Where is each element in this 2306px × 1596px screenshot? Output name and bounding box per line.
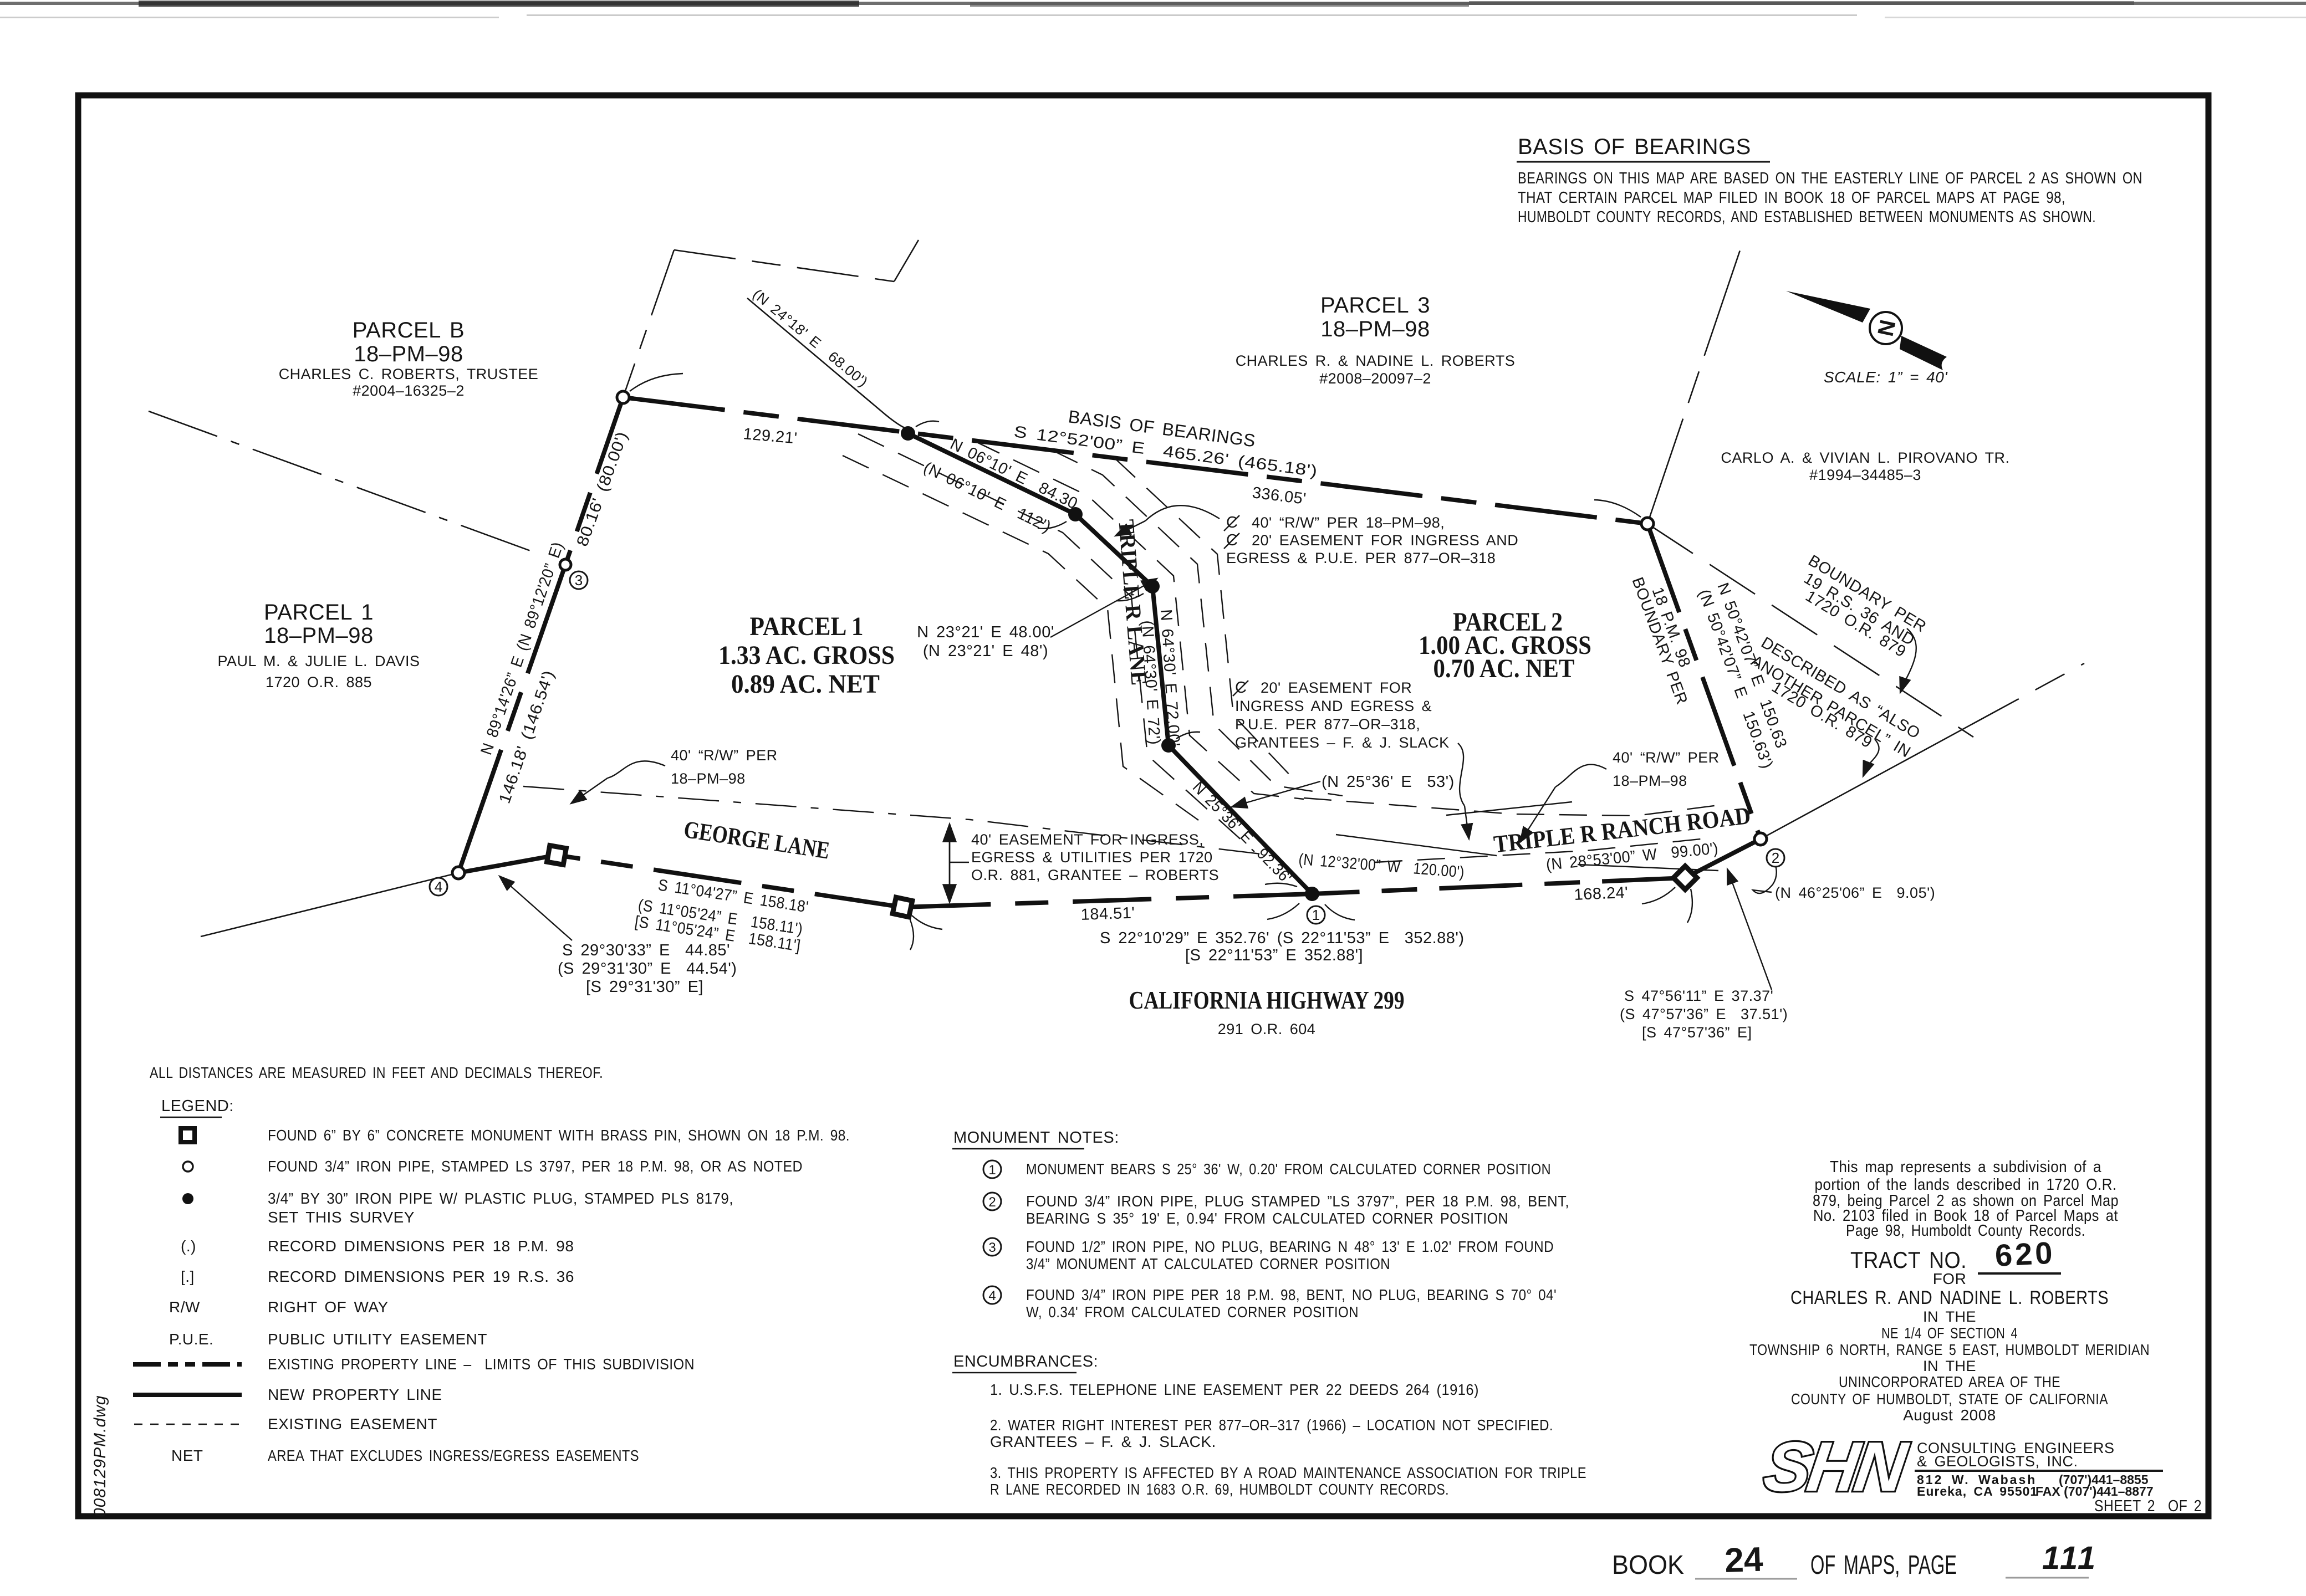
svg-text:Eureka, CA 95501: Eureka, CA 95501	[1917, 1484, 2038, 1498]
svg-text:(S 29°31'30” E 44.54'): (S 29°31'30” E 44.54')	[558, 960, 737, 978]
svg-text:& GEOLOGISTS, INC.: & GEOLOGISTS, INC.	[1917, 1453, 2078, 1470]
svg-text:S 29°30'33” E 44.85': S 29°30'33” E 44.85'	[562, 942, 730, 959]
svg-text:3/4” MONUMENT AT CALCULATED CO: 3/4” MONUMENT AT CALCULATED CORNER POSIT…	[1026, 1255, 1390, 1272]
svg-text:1720 O.R. 885: 1720 O.R. 885	[266, 674, 372, 690]
svg-text:(.): (.)	[181, 1237, 196, 1255]
svg-text:40' “R/W” PER 18–PM–98,: 40' “R/W” PER 18–PM–98,	[1252, 514, 1445, 531]
svg-text:NE 1/4 OF SECTION 4: NE 1/4 OF SECTION 4	[1881, 1324, 2018, 1342]
svg-text:18–PM–98: 18–PM–98	[671, 770, 746, 787]
svg-text:P.U.E.: P.U.E.	[169, 1331, 213, 1348]
svg-text:MONUMENT NOTES:: MONUMENT NOTES:	[953, 1129, 1119, 1147]
svg-text:1: 1	[1312, 907, 1320, 923]
svg-text:SCALE: 1” = 40': SCALE: 1” = 40'	[1824, 369, 1948, 386]
svg-text:BASIS OF BEARINGS: BASIS OF BEARINGS	[1518, 135, 1751, 159]
svg-text:0.89 AC. NET: 0.89 AC. NET	[731, 669, 880, 699]
svg-text:4: 4	[435, 878, 442, 895]
svg-text:portion of the lands described: portion of the lands described in 1720 O…	[1815, 1176, 2117, 1194]
svg-text:[S 47°57'36” E]: [S 47°57'36” E]	[1642, 1024, 1752, 1041]
svg-text:(N 23°21' E 48'): (N 23°21' E 48')	[923, 642, 1048, 660]
svg-text:291 O.R. 604: 291 O.R. 604	[1218, 1021, 1316, 1037]
svg-text:#2008–20097–2: #2008–20097–2	[1319, 370, 1431, 387]
svg-text:This map represents a subdivis: This map represents a subdivision of a	[1830, 1158, 2101, 1176]
svg-text:S 47°56'11” E 37.37': S 47°56'11” E 37.37'	[1624, 988, 1773, 1004]
svg-text:111: 111	[2042, 1540, 2098, 1576]
svg-text:PARCEL 1: PARCEL 1	[264, 600, 374, 625]
svg-text:R LANE RECORDED IN 1683 O.R. 6: R LANE RECORDED IN 1683 O.R. 69, HUMBOLD…	[990, 1481, 1449, 1498]
svg-text:0.70 AC. NET: 0.70 AC. NET	[1433, 654, 1575, 683]
svg-text:(N 46°25'06” E 9.05'): (N 46°25'06” E 9.05')	[1775, 884, 1935, 901]
svg-text:(N 25°36' E 53'): (N 25°36' E 53')	[1322, 773, 1455, 791]
svg-text:EXISTING EASEMENT: EXISTING EASEMENT	[268, 1415, 437, 1433]
svg-text:3: 3	[575, 572, 583, 589]
svg-text:INGRESS AND EGRESS &: INGRESS AND EGRESS &	[1235, 698, 1432, 714]
svg-text:ALL DISTANCES ARE MEASURED IN: ALL DISTANCES ARE MEASURED IN FEET AND D…	[150, 1064, 603, 1081]
svg-text:18–PM–98: 18–PM–98	[1320, 317, 1430, 341]
svg-text:NEW PROPERTY LINE: NEW PROPERTY LINE	[268, 1386, 442, 1403]
svg-text:[.]: [.]	[181, 1268, 195, 1285]
svg-text:SET THIS SURVEY: SET THIS SURVEY	[268, 1209, 415, 1226]
svg-text:24: 24	[1724, 1541, 1764, 1580]
svg-text:2. WATER RIGHT INTEREST PER 87: 2. WATER RIGHT INTEREST PER 877–OR–317 (…	[990, 1416, 1553, 1434]
svg-text:R/W: R/W	[169, 1298, 200, 1316]
svg-text:MONUMENT BEARS S 25° 36' W, 0.: MONUMENT BEARS S 25° 36' W, 0.20' FROM C…	[1026, 1160, 1551, 1178]
svg-text:COUNTY OF HUMBOLDT, STATE OF C: COUNTY OF HUMBOLDT, STATE OF CALIFORNIA	[1791, 1390, 2108, 1408]
svg-text:18–PM–98: 18–PM–98	[1613, 773, 1687, 789]
svg-text:BEARINGS ON THIS MAP ARE BASED: BEARINGS ON THIS MAP ARE BASED ON THE EA…	[1518, 170, 2142, 187]
svg-text:2: 2	[988, 1195, 996, 1210]
svg-text:FOUND 3/4” IRON PIPE PER 18 P.: FOUND 3/4” IRON PIPE PER 18 P.M. 98, BEN…	[1026, 1286, 1557, 1303]
svg-text:40' “R/W” PER: 40' “R/W” PER	[671, 747, 778, 764]
svg-text:[S 29°31'30” E]: [S 29°31'30” E]	[586, 978, 703, 996]
svg-text:2: 2	[1772, 850, 1779, 866]
svg-text:THAT CERTAIN PARCEL MAP FILED: THAT CERTAIN PARCEL MAP FILED IN BOOK 18…	[1518, 189, 2065, 207]
svg-text:PARCEL 3: PARCEL 3	[1320, 293, 1430, 318]
svg-text:PUBLIC UTILITY EASEMENT: PUBLIC UTILITY EASEMENT	[268, 1331, 487, 1348]
svg-text:CHARLES C. ROBERTS, TRUSTEE: CHARLES C. ROBERTS, TRUSTEE	[279, 366, 539, 382]
svg-text:AREA THAT EXCLUDES INGRESS/EGR: AREA THAT EXCLUDES INGRESS/EGRESS EASEME…	[268, 1447, 639, 1464]
svg-text:CHARLES R. & NADINE L. ROBERTS: CHARLES R. & NADINE L. ROBERTS	[1236, 352, 1516, 369]
svg-text:NET: NET	[171, 1447, 203, 1464]
svg-text:RECORD DIMENSIONS PER 19 R.S.: RECORD DIMENSIONS PER 19 R.S. 36	[268, 1268, 574, 1285]
svg-text:SHN: SHN	[1759, 1428, 1912, 1506]
svg-text:August 2008: August 2008	[1903, 1406, 1996, 1424]
svg-text:FOR: FOR	[1933, 1270, 1967, 1287]
svg-text:P.U.E. PER 877–OR–318,: P.U.E. PER 877–OR–318,	[1235, 716, 1420, 733]
svg-text:OF MAPS, PAGE: OF MAPS, PAGE	[1810, 1551, 1957, 1580]
svg-text:LEGEND:: LEGEND:	[161, 1097, 234, 1115]
svg-text:20' EASEMENT FOR: 20' EASEMENT FOR	[1261, 679, 1412, 696]
svg-text:CALIFORNIA HIGHWAY 299: CALIFORNIA HIGHWAY 299	[1129, 986, 1405, 1014]
svg-text:FOUND 1/2” IRON PIPE, NO PLUG,: FOUND 1/2” IRON PIPE, NO PLUG, BEARING N…	[1026, 1238, 1554, 1255]
svg-text:FOUND 3/4” IRON PIPE, PLUG STA: FOUND 3/4” IRON PIPE, PLUG STAMPED ”LS 3…	[1026, 1193, 1569, 1210]
svg-text:EGRESS & P.U.E. PER 877–OR–318: EGRESS & P.U.E. PER 877–OR–318	[1226, 550, 1496, 566]
svg-text:EGRESS & UTILITIES PER 1720: EGRESS & UTILITIES PER 1720	[971, 849, 1213, 866]
svg-text:S 22°10'29” E 352.76' (S 22°11: S 22°10'29” E 352.76' (S 22°11'53” E 352…	[1100, 929, 1465, 947]
svg-text:GRANTEES – F. & J. SLACK: GRANTEES – F. & J. SLACK	[1235, 734, 1450, 751]
svg-text:3: 3	[988, 1240, 996, 1255]
svg-text:18–PM–98: 18–PM–98	[354, 342, 463, 366]
svg-text:1.33 AC. GROSS: 1.33 AC. GROSS	[718, 641, 895, 670]
svg-text:40' EASEMENT FOR INGRESS,: 40' EASEMENT FOR INGRESS,	[971, 831, 1203, 848]
svg-text:#1994–34485–3: #1994–34485–3	[1809, 467, 1921, 483]
svg-text:N 23°21' E 48.00': N 23°21' E 48.00'	[917, 623, 1054, 641]
svg-text:ENCUMBRANCES:: ENCUMBRANCES:	[953, 1353, 1098, 1370]
svg-text:4: 4	[988, 1288, 996, 1303]
svg-text:PARCEL 1: PARCEL 1	[750, 612, 864, 641]
svg-text:UNINCORPORATED AREA OF THE: UNINCORPORATED AREA OF THE	[1839, 1373, 2060, 1390]
svg-text:EXISTING PROPERTY LINE – LIMI: EXISTING PROPERTY LINE – LIMITS OF THIS …	[268, 1355, 695, 1373]
svg-text:3/4” BY 30” IRON PIPE W/ PLAST: 3/4” BY 30” IRON PIPE W/ PLASTIC PLUG, S…	[268, 1190, 733, 1207]
svg-text:008129PM.dwg: 008129PM.dwg	[91, 1395, 109, 1517]
svg-text:CHARLES R. AND NADINE L. ROBER: CHARLES R. AND NADINE L. ROBERTS	[1790, 1287, 2109, 1308]
svg-text:FAX (707')441–8877: FAX (707')441–8877	[2035, 1484, 2154, 1498]
svg-text:(S 47°57'36” E 37.51'): (S 47°57'36” E 37.51')	[1620, 1006, 1788, 1022]
svg-text:PARCEL B: PARCEL B	[353, 318, 465, 342]
svg-text:FOUND 3/4” IRON PIPE, STAMPED: FOUND 3/4” IRON PIPE, STAMPED LS 3797, P…	[268, 1158, 803, 1175]
svg-text:168.24': 168.24'	[1574, 884, 1629, 904]
svg-text:SHEET 2 OF 2: SHEET 2 OF 2	[2094, 1497, 2202, 1515]
svg-text:TRACT NO.: TRACT NO.	[1850, 1247, 1967, 1273]
svg-text:BOOK: BOOK	[1612, 1551, 1684, 1580]
svg-text:TOWNSHIP 6 NORTH, RANGE 5 EAST: TOWNSHIP 6 NORTH, RANGE 5 EAST, HUMBOLDT…	[1749, 1341, 2150, 1358]
svg-text:BEARING S 35° 19' E, 0.94' FRO: BEARING S 35° 19' E, 0.94' FROM CALCULAT…	[1026, 1210, 1508, 1227]
svg-text:CARLO A. & VIVIAN L. PIROVANO: CARLO A. & VIVIAN L. PIROVANO TR.	[1721, 449, 2009, 466]
svg-text:40' “R/W” PER: 40' “R/W” PER	[1613, 749, 1720, 766]
svg-text:[S 22°11'53” E 352.88']: [S 22°11'53” E 352.88']	[1185, 947, 1363, 964]
svg-text:1: 1	[988, 1163, 996, 1178]
svg-text:GRANTEES – F. & J. SLACK.: GRANTEES – F. & J. SLACK.	[990, 1433, 1216, 1450]
svg-text:W, 0.34' FROM CALCULATED CORNE: W, 0.34' FROM CALCULATED CORNER POSITION	[1026, 1303, 1359, 1321]
svg-text:RECORD DIMENSIONS PER 18 P.M.: RECORD DIMENSIONS PER 18 P.M. 98	[268, 1237, 574, 1255]
svg-text:PAUL M. & JULIE L. DAVIS: PAUL M. & JULIE L. DAVIS	[217, 653, 420, 669]
svg-text:IN THE: IN THE	[1923, 1308, 1976, 1325]
svg-text:18–PM–98: 18–PM–98	[264, 623, 373, 648]
svg-text:O.R. 881, GRANTEE – ROBERTS: O.R. 881, GRANTEE – ROBERTS	[971, 867, 1219, 883]
svg-text:20' EASEMENT FOR INGRESS AND: 20' EASEMENT FOR INGRESS AND	[1252, 532, 1518, 549]
svg-text:RIGHT OF WAY: RIGHT OF WAY	[268, 1298, 389, 1316]
svg-text:3. THIS PROPERTY IS AFFECTED B: 3. THIS PROPERTY IS AFFECTED BY A ROAD M…	[990, 1464, 1586, 1481]
svg-text:FOUND 6” BY 6” CONCRETE MONUME: FOUND 6” BY 6” CONCRETE MONUMENT WITH BR…	[268, 1127, 850, 1144]
svg-text:HUMBOLDT COUNTY RECORDS, AND E: HUMBOLDT COUNTY RECORDS, AND ESTABLISHED…	[1518, 208, 2096, 226]
svg-text:620: 620	[1994, 1235, 2056, 1273]
svg-text:IN THE: IN THE	[1923, 1358, 1976, 1374]
svg-text:184.51': 184.51'	[1080, 904, 1135, 924]
svg-text:#2004–16325–2: #2004–16325–2	[353, 382, 465, 399]
svg-text:1. U.S.F.S. TELEPHONE LINE EAS: 1. U.S.F.S. TELEPHONE LINE EASEMENT PER …	[990, 1381, 1479, 1398]
